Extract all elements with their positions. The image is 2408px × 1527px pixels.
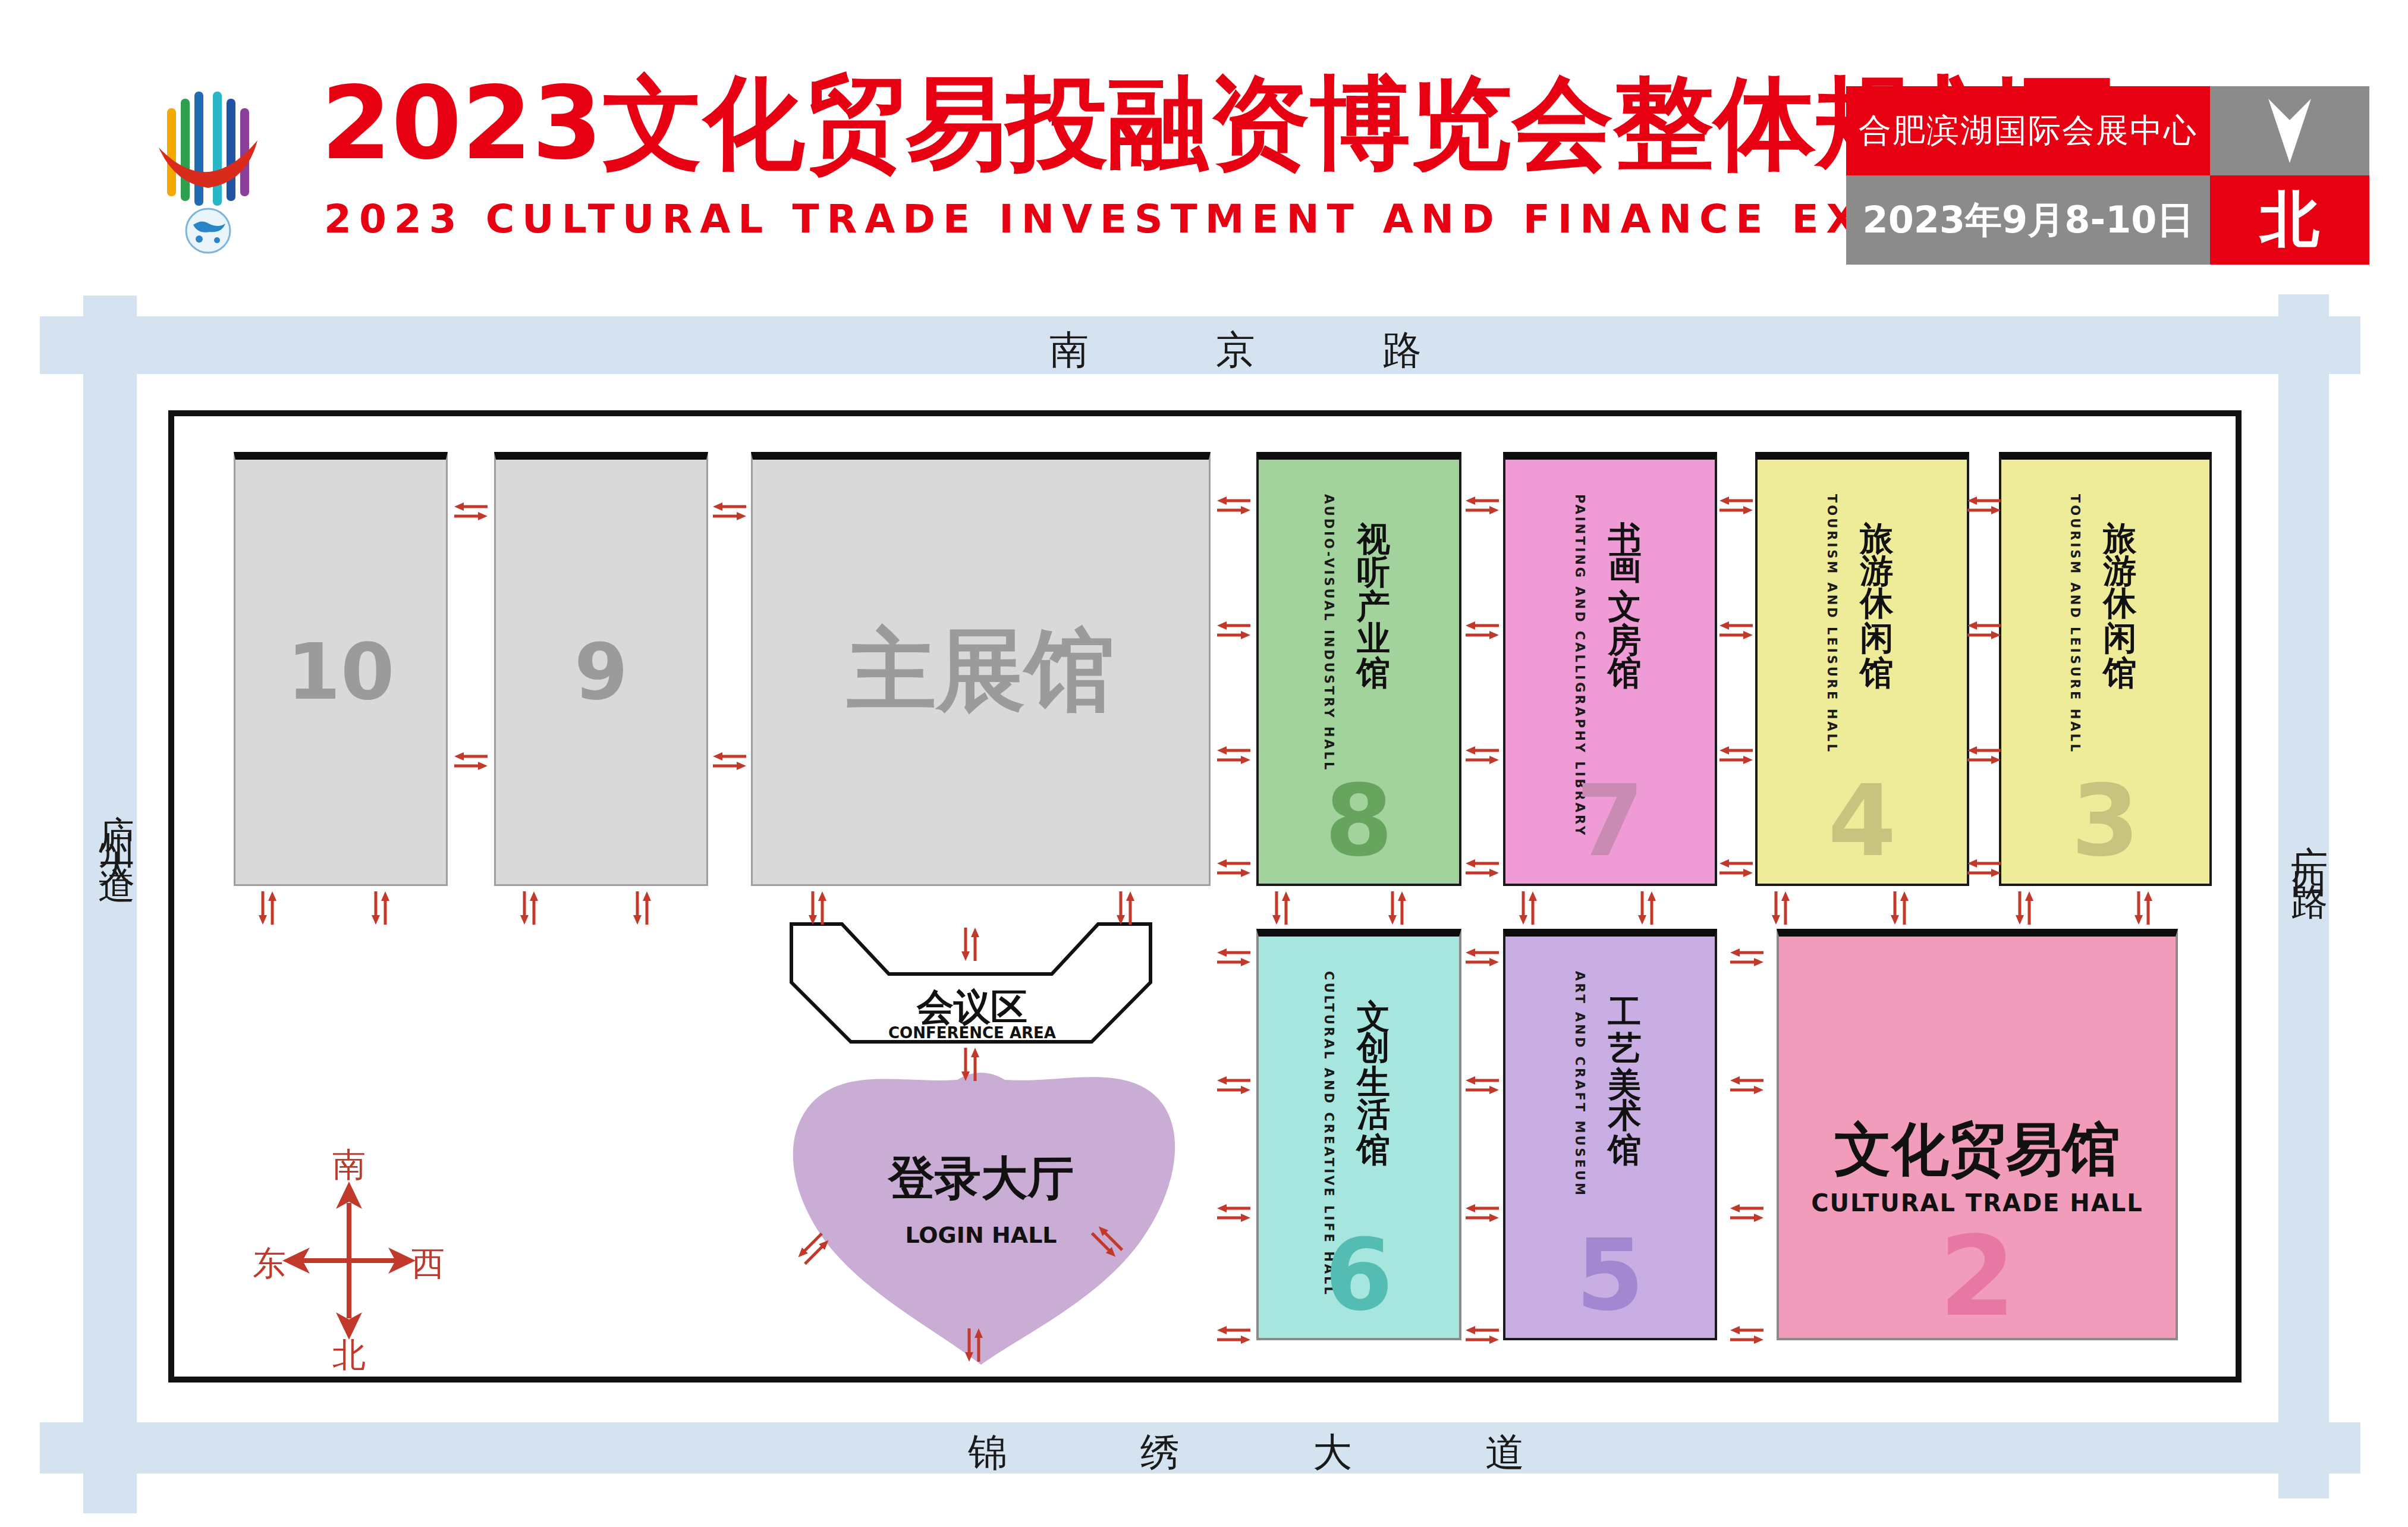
entrance-arrow-icon bbox=[1466, 859, 1499, 877]
entrance-arrow-icon bbox=[454, 502, 488, 520]
entrance-arrow-icon bbox=[1519, 891, 1537, 925]
entrance-arrow-icon bbox=[1217, 497, 1250, 514]
conference-area-label-en: CONFERENCE AREA bbox=[785, 1024, 1159, 1042]
hall-7-number: 7 bbox=[1505, 772, 1715, 871]
hall-4-name-en: TOURISM AND LEISURE HALL bbox=[1825, 494, 1839, 754]
entrance-arrow-icon bbox=[1217, 1326, 1250, 1344]
entrance-arrow-icon bbox=[1719, 859, 1753, 877]
north-label: 北 bbox=[2210, 175, 2369, 265]
hall-6-number: 6 bbox=[1259, 1227, 1459, 1325]
hall-main-label: 主展馆 bbox=[753, 460, 1209, 884]
entrance-arrow-icon bbox=[1466, 621, 1499, 639]
compass-west-label: 西 bbox=[411, 1242, 445, 1287]
hall-5-name-cn: 工艺美术馆 bbox=[1602, 971, 1648, 1198]
hall-8-names: AUDIO-VISUAL INDUSTRY HALL 视听产业馆 bbox=[1259, 494, 1459, 772]
entrance-arrow-icon bbox=[1719, 746, 1753, 764]
entrance-arrow-icon bbox=[520, 891, 538, 925]
entrance-arrow-icon bbox=[1466, 1076, 1499, 1094]
entrance-arrow-icon bbox=[1719, 497, 1753, 514]
entrance-arrow-icon bbox=[1466, 497, 1499, 514]
road-luzhou bbox=[83, 296, 137, 1513]
hall-8-number: 8 bbox=[1259, 772, 1459, 871]
page-subtitle: 2023 CULTURAL TRADE INVESTMENT AND FINAN… bbox=[324, 196, 1942, 242]
entrance-arrow-icon bbox=[372, 891, 389, 925]
entrance-arrow-icon bbox=[1466, 1204, 1499, 1222]
entrance-arrow-icon bbox=[1217, 621, 1250, 639]
hall-5-number: 5 bbox=[1505, 1227, 1715, 1325]
compass-north-label: 北 bbox=[332, 1333, 366, 1378]
hall-8-audio-visual: AUDIO-VISUAL INDUSTRY HALL 视听产业馆 8 bbox=[1256, 452, 1461, 886]
road-guangxi bbox=[2278, 294, 2329, 1498]
hall-3-tourism-leisure: TOURISM AND LEISURE HALL 旅游休闲馆 3 bbox=[1999, 452, 2212, 886]
hall-9-label: 9 bbox=[496, 460, 706, 884]
hall-2-name-cn: 文化贸易馆 bbox=[1779, 1112, 2176, 1189]
entrance-arrow-icon bbox=[1217, 948, 1250, 966]
entrance-arrow-icon bbox=[809, 891, 826, 925]
compass-east-label: 东 bbox=[253, 1242, 286, 1287]
entrance-arrow-icon bbox=[1272, 891, 1290, 925]
entrance-arrow-icon bbox=[1730, 1204, 1763, 1222]
hall-5-art-craft: ART AND CRAFT MUSEUM 工艺美术馆 5 bbox=[1503, 929, 1717, 1340]
entrance-arrow-icon bbox=[1217, 1076, 1250, 1094]
expo-logo bbox=[158, 83, 259, 256]
entrance-arrow-icon bbox=[454, 752, 488, 770]
road-luzhou-label: 庐州大道 bbox=[92, 785, 142, 856]
entrance-arrow-icon bbox=[961, 1048, 979, 1081]
entrance-arrow-icon bbox=[1967, 746, 2001, 764]
hall-2-number: 2 bbox=[1779, 1222, 2176, 1332]
entrance-arrow-icon bbox=[1466, 948, 1499, 966]
hall-3-name-en: TOURISM AND LEISURE HALL bbox=[2068, 494, 2082, 754]
hall-4-names: TOURISM AND LEISURE HALL 旅游休闲馆 bbox=[1758, 494, 1967, 754]
hall-8-name-en: AUDIO-VISUAL INDUSTRY HALL bbox=[1322, 494, 1336, 772]
entrance-arrow-icon bbox=[1638, 891, 1656, 925]
entrance-arrow-icon bbox=[1730, 1076, 1763, 1094]
entrance-arrow-icon bbox=[713, 752, 746, 770]
entrance-arrow-icon bbox=[1217, 746, 1250, 764]
entrance-arrow-icon bbox=[961, 928, 979, 961]
hall-4-name-cn: 旅游休闲馆 bbox=[1854, 494, 1900, 754]
hall-2-cultural-trade: 文化贸易馆 CULTURAL TRADE HALL 2 bbox=[1777, 929, 2178, 1340]
entrance-arrow-icon bbox=[1719, 621, 1753, 639]
road-nanjing-label: 南京路 bbox=[1049, 323, 1549, 377]
hall-3-names: TOURISM AND LEISURE HALL 旅游休闲馆 bbox=[2001, 494, 2209, 754]
hall-3-number: 3 bbox=[2001, 772, 2209, 871]
hall-7-painting-calligraphy: PAINTING AND CALLIGRAPHY LIBRARY 书画文房馆 7 bbox=[1503, 452, 1717, 886]
hall-10-label: 10 bbox=[235, 460, 446, 884]
entrance-arrow-icon bbox=[2134, 891, 2152, 925]
hall-8-name-cn: 视听产业馆 bbox=[1351, 494, 1397, 772]
road-guangxi-label: 广西路 bbox=[2284, 816, 2334, 875]
hall-main-exhibition: 主展馆 bbox=[751, 452, 1211, 886]
entrance-arrow-icon bbox=[1891, 891, 1909, 925]
entrance-arrow-icon bbox=[2016, 891, 2033, 925]
hall-5-name-en: ART AND CRAFT MUSEUM bbox=[1573, 971, 1587, 1198]
entrance-arrow-icon bbox=[1967, 859, 2001, 877]
hall-6-cultural-creative-life: CULTURAL AND CREATIVE LIFE HALL 文创生活馆 6 bbox=[1256, 929, 1461, 1340]
venue-name: 合肥滨湖国际会展中心 bbox=[1846, 86, 2210, 175]
entrance-arrow-icon bbox=[1730, 948, 1763, 966]
expo-overall-plan-poster: 2023文化贸易投融资博览会整体规划图 2023 CULTURAL TRADE … bbox=[0, 0, 2408, 1527]
north-arrow-cell bbox=[2210, 86, 2369, 175]
entrance-arrow-icon bbox=[633, 891, 651, 925]
entrance-arrow-icon bbox=[1730, 1326, 1763, 1344]
entrance-arrow-icon bbox=[1388, 891, 1406, 925]
entrance-arrow-icon bbox=[1466, 746, 1499, 764]
entrance-arrow-icon bbox=[1117, 891, 1134, 925]
hall-5-names: ART AND CRAFT MUSEUM 工艺美术馆 bbox=[1505, 971, 1715, 1198]
entrance-arrow-icon bbox=[259, 891, 276, 925]
north-arrow-icon bbox=[2263, 95, 2316, 166]
hall-4-number: 4 bbox=[1758, 772, 1967, 871]
entrance-arrow-icon bbox=[713, 502, 746, 520]
event-dates: 2023年9月8-10日 bbox=[1846, 175, 2210, 265]
entrance-arrow-icon bbox=[1217, 1204, 1250, 1222]
entrance-arrow-icon bbox=[965, 1328, 983, 1362]
hall-4-tourism-leisure: TOURISM AND LEISURE HALL 旅游休闲馆 4 bbox=[1755, 452, 1969, 886]
entrance-arrow-icon bbox=[1967, 621, 2001, 639]
hall-10: 10 bbox=[234, 452, 448, 886]
road-jinxiu-label: 锦绣大道 bbox=[968, 1426, 1658, 1479]
hall-9: 9 bbox=[494, 452, 708, 886]
entrance-arrow-icon bbox=[1217, 859, 1250, 877]
entrance-arrow-icon bbox=[1772, 891, 1790, 925]
venue-info-box: 合肥滨湖国际会展中心 2023年9月8-10日 北 bbox=[1846, 86, 2369, 265]
entrance-arrow-icon bbox=[1967, 497, 2001, 514]
compass-icon bbox=[272, 1180, 426, 1341]
compass-south-label: 南 bbox=[332, 1143, 366, 1188]
entrance-arrow-icon bbox=[1466, 1326, 1499, 1344]
hall-3-name-cn: 旅游休闲馆 bbox=[2098, 494, 2143, 754]
login-hall-label-cn: 登录大厅 bbox=[761, 1148, 1201, 1210]
